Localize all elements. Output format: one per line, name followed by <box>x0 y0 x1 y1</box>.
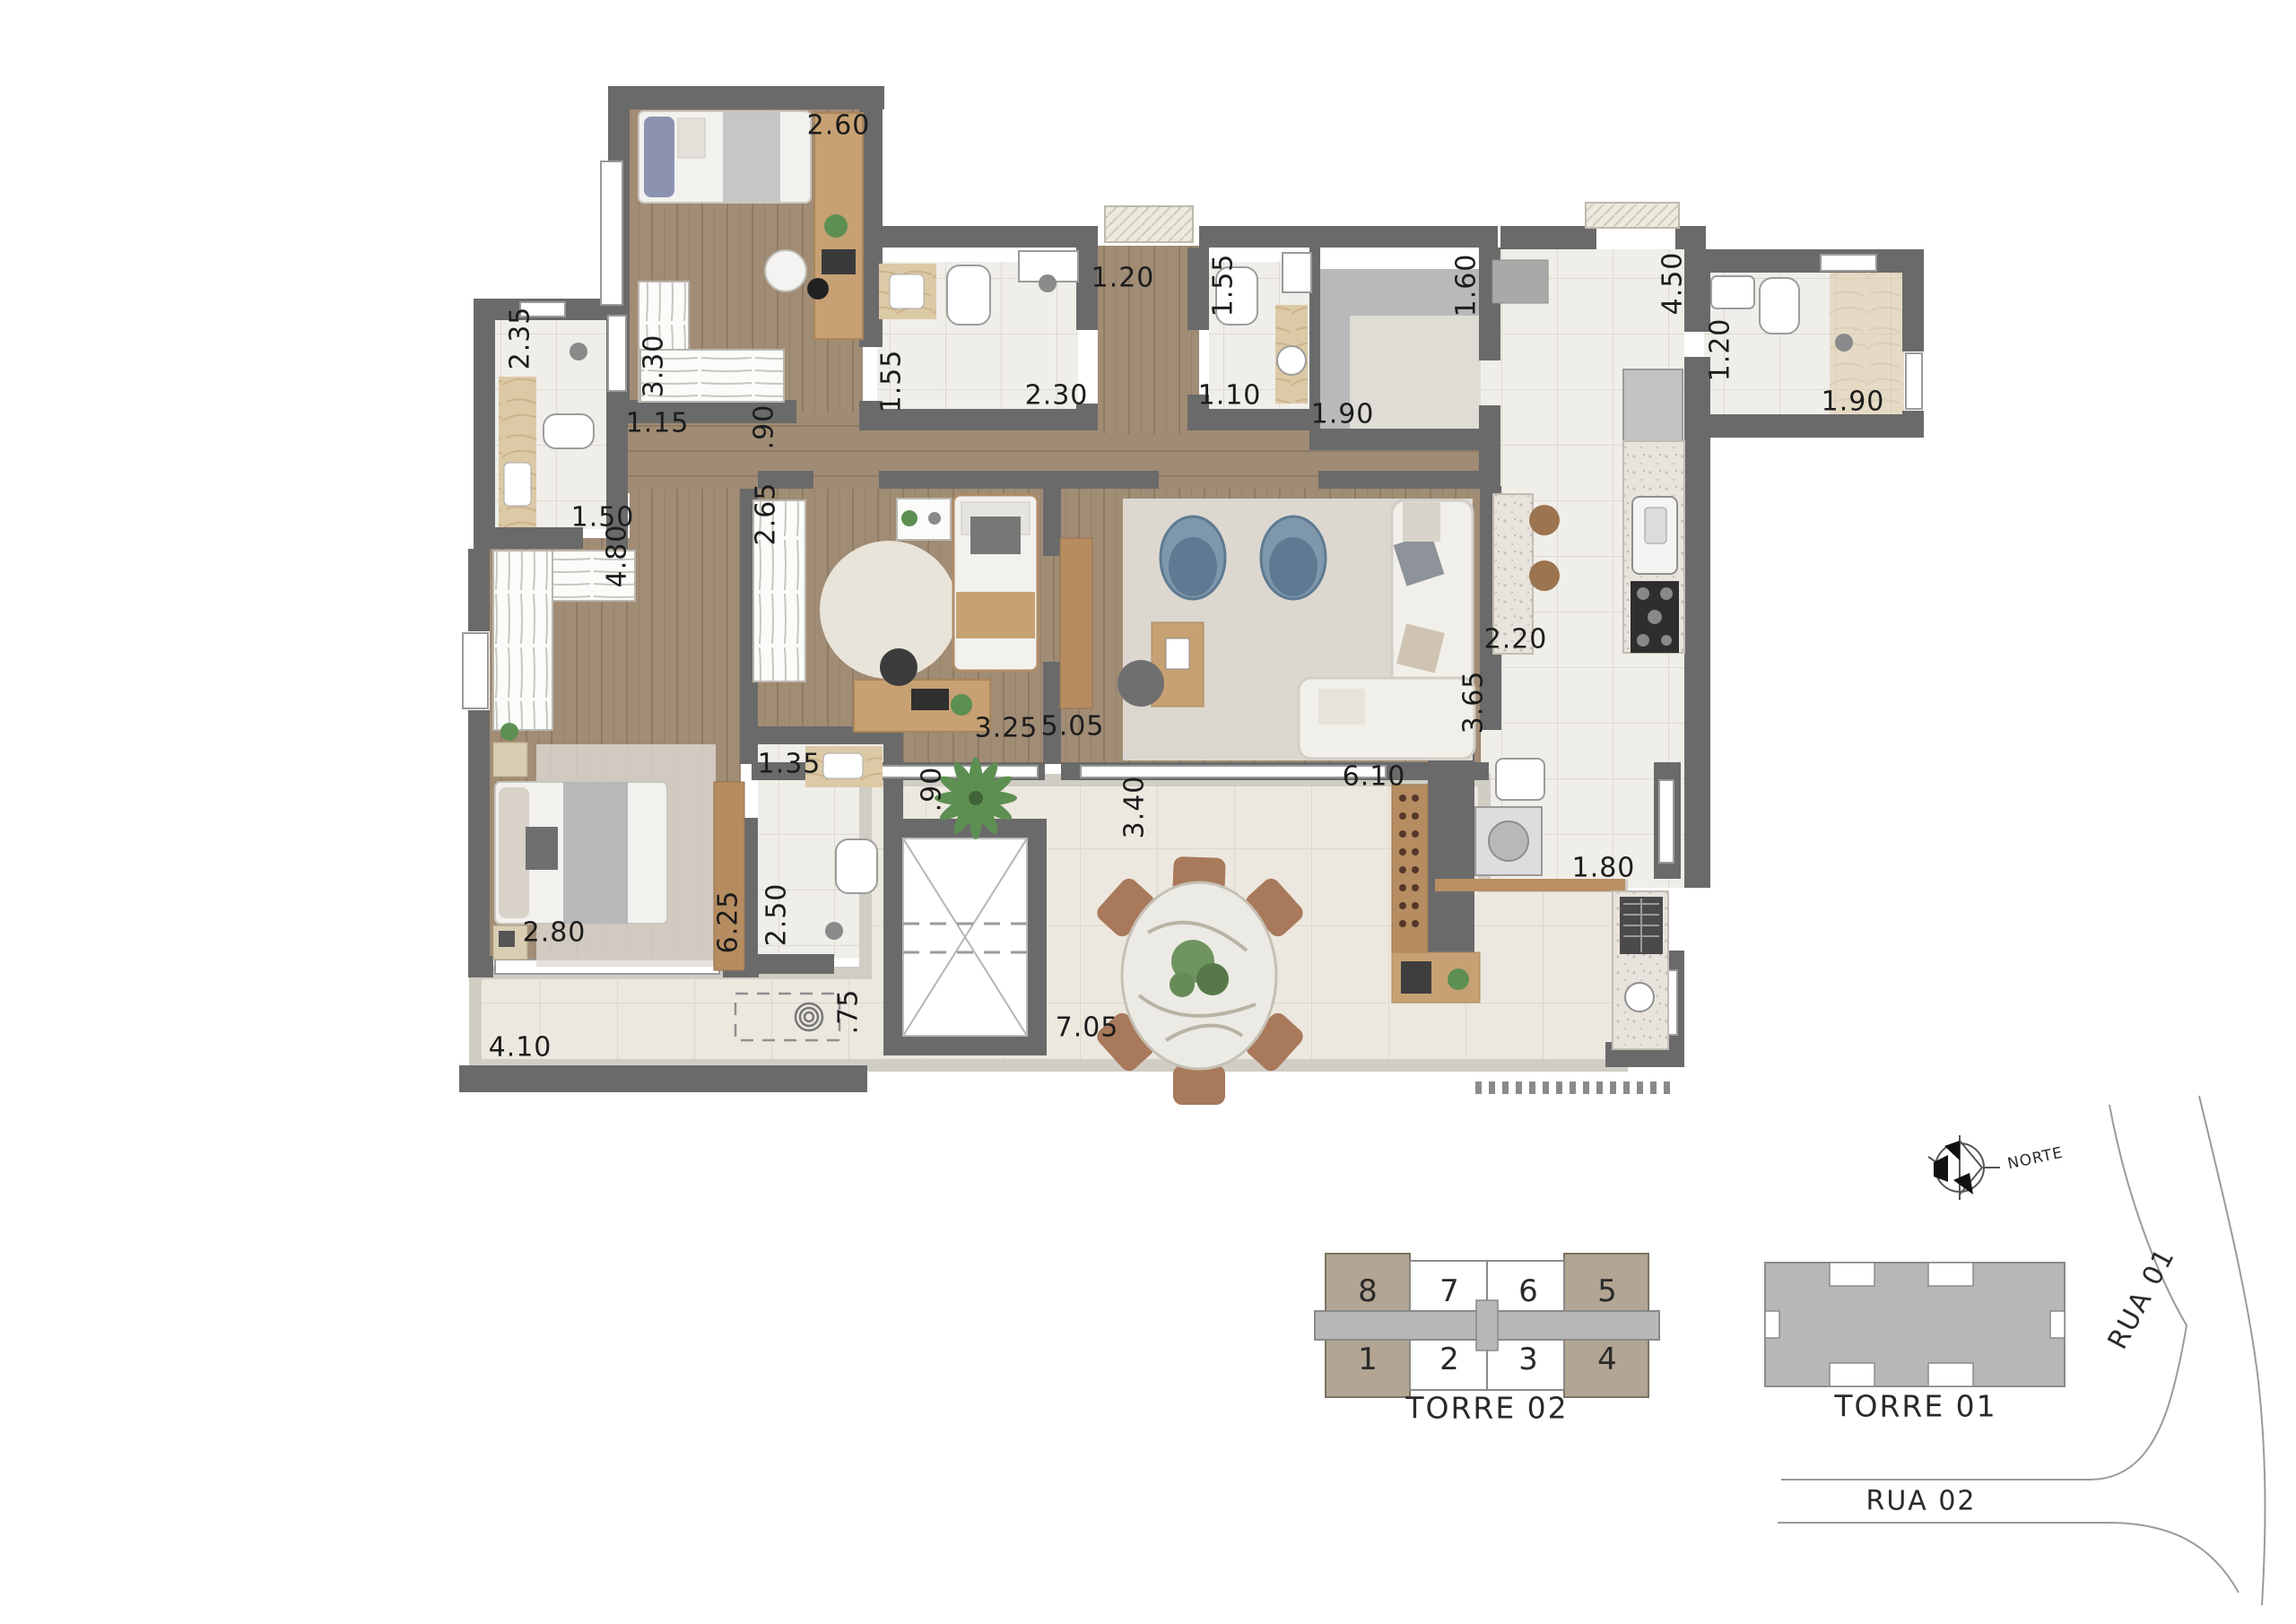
dimension-label: 1.15 <box>626 408 690 439</box>
dimension-label: 1.55 <box>1208 254 1239 317</box>
niche-bathD <box>1283 253 1311 292</box>
nightstand-1 <box>493 743 527 777</box>
sink-wc <box>1711 276 1754 308</box>
dimension-label: 6.25 <box>713 890 744 954</box>
tv-panel-living <box>1060 538 1092 708</box>
dimension-label: 2.20 <box>1484 624 1548 656</box>
side-table <box>1118 660 1164 707</box>
dimension-label: 1.35 <box>758 749 822 780</box>
dimension-label: 4.80 <box>602 525 633 588</box>
stool-2 <box>1529 560 1560 591</box>
dining-set <box>1093 856 1307 1105</box>
desk-chair-1 <box>765 250 806 291</box>
armchair-blue-1 <box>1161 517 1225 599</box>
sink-bathA <box>504 463 531 506</box>
dimension-label: 3.40 <box>1119 776 1151 839</box>
dimension-label: 3.65 <box>1458 671 1490 734</box>
window-master-side <box>463 633 488 708</box>
service-cabinet <box>1492 260 1548 303</box>
armchair-blue-2 <box>1261 517 1326 599</box>
dimension-label: 1.20 <box>1705 318 1736 382</box>
dimension-label: 6.10 <box>1343 761 1406 793</box>
floor-plan-page: 2.603.302.351.15.901.504.802.651.552.301… <box>0 0 2296 1624</box>
dimension-label: 4.10 <box>489 1032 552 1064</box>
dimension-label: 3.30 <box>639 334 670 398</box>
unit-8: 8 <box>1358 1273 1378 1309</box>
entry-mat <box>1105 206 1193 242</box>
unit-2: 2 <box>1439 1342 1459 1377</box>
dimension-label: 2.60 <box>807 110 871 142</box>
shower-wc <box>1835 334 1853 352</box>
shower-master-bath <box>825 922 843 940</box>
dimension-label: .75 <box>833 989 865 1035</box>
toilet-bathC <box>947 265 990 325</box>
dimension-label: 1.55 <box>876 350 908 413</box>
sink-bathC <box>890 274 924 308</box>
dimension-label: 2.65 <box>751 482 782 546</box>
sink-bathD <box>1277 346 1306 375</box>
dimension-label: 4.50 <box>1657 252 1689 316</box>
dimension-label: 1.80 <box>1572 853 1636 884</box>
niche-bathA <box>608 316 626 391</box>
niche-wc <box>1821 255 1876 271</box>
north-arrow <box>1928 1135 2000 1200</box>
torre-01-label: TORRE 01 <box>1834 1389 1996 1424</box>
dimension-label: 1.90 <box>1311 399 1375 430</box>
unit-5: 5 <box>1597 1273 1617 1309</box>
fridge <box>1623 369 1683 441</box>
unit-6: 6 <box>1518 1273 1538 1309</box>
elevator-shaft <box>883 819 1047 1055</box>
dimension-label: 1.20 <box>1091 263 1155 294</box>
grill-sink <box>1625 983 1654 1012</box>
laundry-sink <box>1496 759 1544 800</box>
window-wc <box>1906 353 1922 409</box>
torre-02-label: TORRE 02 <box>1405 1391 1568 1426</box>
dimension-label: 2.50 <box>761 883 793 947</box>
stool-1 <box>1529 505 1560 535</box>
torre-01-building <box>1765 1263 2065 1386</box>
dimension-label: 2.80 <box>523 917 587 949</box>
unit-3: 3 <box>1518 1342 1538 1377</box>
wardrobe-master-a <box>493 551 552 730</box>
dimension-label: 1.10 <box>1198 380 1262 412</box>
unit-1: 1 <box>1358 1342 1378 1377</box>
unit-7: 7 <box>1439 1273 1459 1309</box>
rua-02-label: RUA 02 <box>1865 1486 1976 1517</box>
dimension-label: .90 <box>917 767 948 812</box>
dimension-label: 5.05 <box>1041 711 1105 743</box>
window-laundry <box>1659 780 1674 863</box>
window-bedroom1 <box>601 161 622 305</box>
dimension-label: 7.05 <box>1056 1012 1119 1044</box>
toilet-master-bath <box>836 839 877 893</box>
dimension-label: .90 <box>749 404 780 450</box>
dimension-label: 2.35 <box>505 307 536 370</box>
shower-bathC <box>1039 274 1057 292</box>
shower-bathA <box>570 343 587 360</box>
toilet-wc <box>1760 278 1799 334</box>
dimension-label: 3.25 <box>975 713 1039 744</box>
dimension-label: 1.60 <box>1451 254 1483 317</box>
wine-rack <box>1392 785 1428 955</box>
service-mat <box>1586 203 1679 228</box>
toilet-bathA <box>544 414 594 448</box>
desk-chair-2 <box>880 648 918 686</box>
sink-master-bath <box>823 753 863 778</box>
pergola-ticks <box>1475 1081 1670 1094</box>
dimension-label: 2.30 <box>1025 380 1089 412</box>
unit-4: 4 <box>1597 1342 1617 1377</box>
dimension-label: 1.90 <box>1822 386 1885 418</box>
